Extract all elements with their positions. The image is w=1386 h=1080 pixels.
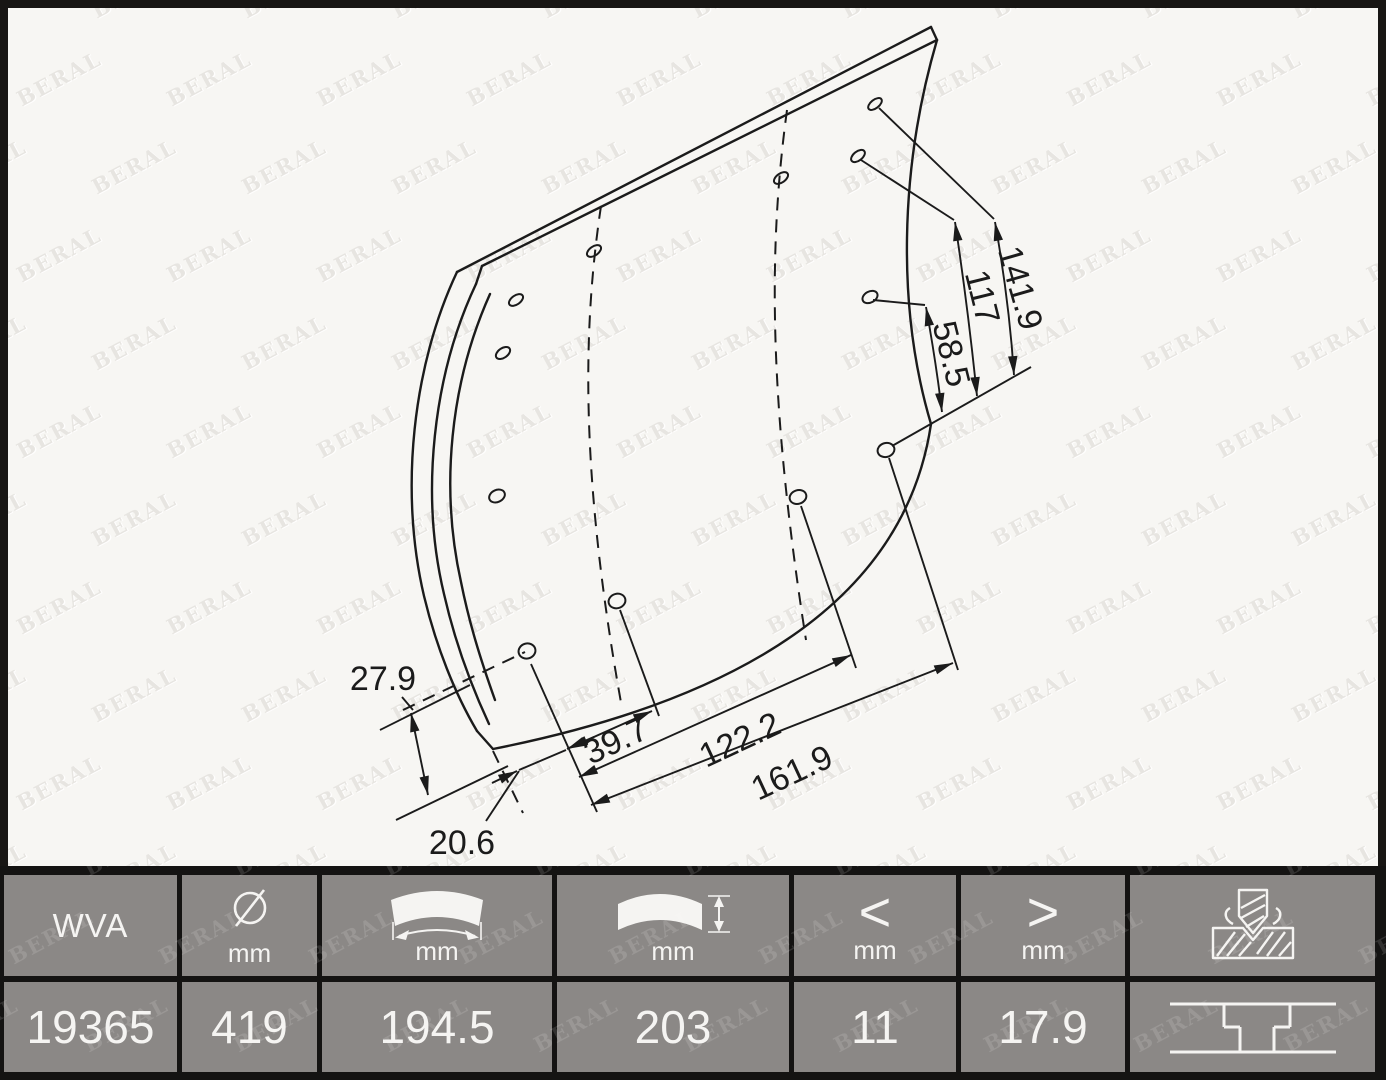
countersink-drill-icon	[1201, 886, 1305, 966]
brand-watermark: BERAL	[838, 8, 931, 23]
drawing-panel: BERALBERALBERALBERALBERALBERALBERALBERAL…	[8, 8, 1378, 866]
less-than-symbol: <	[859, 888, 892, 936]
brand-watermark: BERAL	[688, 310, 781, 375]
brand-watermark: BERAL	[238, 838, 331, 866]
brand-watermark: BERAL	[538, 486, 631, 551]
brand-watermark: BERAL	[8, 662, 31, 727]
brand-watermark: BERAL	[838, 486, 931, 551]
brand-watermark: BERAL	[88, 8, 181, 23]
brand-watermark: BERAL	[1213, 574, 1306, 639]
brand-watermark: BERAL	[988, 486, 1081, 551]
brand-watermark: BERAL	[8, 134, 31, 199]
brand-watermark: BERAL	[8, 310, 31, 375]
length-value: 194.5	[379, 1000, 494, 1054]
brand-watermark: BERAL	[1288, 486, 1378, 551]
brand-watermark: BERAL	[463, 222, 556, 287]
unit-label: mm	[228, 940, 271, 966]
brand-watermark: BERAL	[988, 662, 1081, 727]
brand-watermark: BERAL	[388, 838, 481, 866]
brand-watermark: BERAL	[163, 46, 256, 111]
value-cell-rivet	[1130, 982, 1375, 1072]
wva-label: WVA	[53, 907, 129, 945]
brand-watermark: BERAL	[1063, 574, 1156, 639]
brand-watermark: BERAL	[238, 486, 331, 551]
header-cell-diameter: mm	[182, 875, 317, 976]
brand-watermark: BERAL	[688, 838, 781, 866]
brand-watermark: BERAL	[13, 574, 106, 639]
brand-watermark: BERAL	[313, 574, 406, 639]
brand-watermark: BERAL	[688, 134, 781, 199]
brand-watermark: BERAL	[88, 486, 181, 551]
brand-watermark: BERAL	[1288, 134, 1378, 199]
brand-watermark: BERAL	[163, 750, 256, 815]
brand-watermark: BERAL	[1138, 662, 1231, 727]
brand-watermark: BERAL	[613, 222, 706, 287]
diameter-icon	[225, 886, 275, 938]
header-cell-min-thickness: < mm	[794, 875, 956, 976]
spec-table: WVA mm mm	[0, 866, 1386, 1080]
brand-watermark: BERAL	[163, 574, 256, 639]
brand-watermark: BERAL	[1063, 222, 1156, 287]
brand-watermark: BERAL	[1138, 8, 1231, 23]
brand-watermark: BERAL	[988, 838, 1081, 866]
brand-watermark: BERAL	[388, 310, 481, 375]
brand-watermark: BERAL	[13, 222, 106, 287]
value-cell-min-thickness: 11	[794, 982, 956, 1072]
header-cell-rivet	[1130, 875, 1375, 976]
brand-watermark: BERAL	[613, 398, 706, 463]
spec-grid: WVA mm mm	[4, 875, 1375, 1072]
brand-watermark: BERAL	[1213, 46, 1306, 111]
unit-label: mm	[415, 938, 458, 964]
brand-watermark: BERAL	[238, 134, 331, 199]
brand-watermark: BERAL	[988, 8, 1081, 23]
brand-watermark: BERAL	[463, 398, 556, 463]
brand-watermark: BERAL	[163, 222, 256, 287]
brand-watermark: BERAL	[613, 574, 706, 639]
header-cell-wva: WVA	[4, 875, 177, 976]
brand-watermark: BERAL	[313, 222, 406, 287]
unit-label: mm	[853, 937, 896, 963]
brand-watermark: BERAL	[88, 310, 181, 375]
brand-watermark: BERAL	[1138, 838, 1231, 866]
brand-watermark: BERAL	[238, 662, 331, 727]
brand-watermark: BERAL	[163, 398, 256, 463]
brand-watermark: BERAL	[238, 8, 331, 23]
brand-watermark: BERAL	[8, 8, 31, 23]
brand-watermark: BERAL	[313, 398, 406, 463]
brand-watermark: BERAL	[613, 46, 706, 111]
brand-watermark: BERAL	[538, 8, 631, 23]
max-thickness-value: 17.9	[998, 1000, 1088, 1054]
brand-watermark: BERAL	[1213, 398, 1306, 463]
brand-watermark: BERAL	[8, 838, 31, 866]
brand-watermark: BERAL	[1138, 310, 1231, 375]
brand-watermark: BERAL	[1363, 574, 1378, 639]
brand-watermark: BERAL	[88, 838, 181, 866]
wva-value: 19365	[27, 1000, 155, 1054]
brand-watermark: BERAL	[463, 46, 556, 111]
header-cell-width: mm	[557, 875, 789, 976]
brand-watermark: BERAL	[238, 310, 331, 375]
brand-watermark: BERAL	[913, 750, 1006, 815]
value-cell-length: 194.5	[322, 982, 552, 1072]
width-value: 203	[635, 1000, 712, 1054]
unit-label: mm	[651, 938, 694, 964]
brand-watermark: BERAL	[763, 398, 856, 463]
unit-label: mm	[1021, 937, 1064, 963]
brand-watermark: BERAL	[13, 46, 106, 111]
brand-watermark: BERAL	[838, 134, 931, 199]
brand-watermark: BERAL	[1363, 222, 1378, 287]
brand-watermark: BERAL	[763, 46, 856, 111]
value-cell-wva: 19365	[4, 982, 177, 1072]
brand-watermark: BERAL	[1288, 8, 1378, 23]
brand-watermark: BERAL	[763, 574, 856, 639]
brand-watermark: BERAL	[988, 134, 1081, 199]
brand-watermark: BERAL	[1213, 222, 1306, 287]
brand-watermark: BERAL	[1063, 750, 1156, 815]
brand-watermark: BERAL	[613, 750, 706, 815]
brand-watermark: BERAL	[913, 222, 1006, 287]
brand-watermark: BERAL	[388, 134, 481, 199]
header-cell-length: mm	[322, 875, 552, 976]
brand-watermark: BERAL	[913, 398, 1006, 463]
brand-watermark: BERAL	[388, 8, 481, 23]
brand-watermark: BERAL	[88, 134, 181, 199]
brand-watermark: BERAL	[388, 662, 481, 727]
brand-watermark: BERAL	[13, 398, 106, 463]
brand-watermark: BERAL	[1288, 662, 1378, 727]
brand-watermark: BERAL	[538, 838, 631, 866]
brand-watermark: BERAL	[1363, 398, 1378, 463]
header-cell-max-thickness: > mm	[961, 875, 1125, 976]
brand-watermark: BERAL	[8, 486, 31, 551]
brand-watermark: BERAL	[763, 750, 856, 815]
brand-watermark: BERAL	[688, 662, 781, 727]
brand-watermark: BERAL	[13, 750, 106, 815]
brand-watermark: BERAL	[388, 486, 481, 551]
value-cell-width: 203	[557, 982, 789, 1072]
catalog-image: { "brand_watermark": { "text": "BERAL" }…	[0, 0, 1386, 1080]
brand-watermark: BERAL	[763, 222, 856, 287]
brand-watermark: BERAL	[688, 8, 781, 23]
brand-watermark: BERAL	[1288, 838, 1378, 866]
brand-watermark: BERAL	[913, 574, 1006, 639]
brand-watermark: BERAL	[688, 486, 781, 551]
min-thickness-value: 11	[851, 1000, 899, 1054]
brand-watermark: BERAL	[1063, 398, 1156, 463]
brand-watermark: BERAL	[1213, 750, 1306, 815]
brand-watermark: BERAL	[1363, 750, 1378, 815]
value-cell-diameter: 419	[182, 982, 317, 1072]
brand-watermark: BERAL	[463, 750, 556, 815]
brand-watermark: BERAL	[838, 310, 931, 375]
brand-watermark: BERAL	[838, 838, 931, 866]
diameter-value: 419	[211, 1000, 288, 1054]
brand-watermark: BERAL	[88, 662, 181, 727]
rivet-hole-profile-icon	[1158, 994, 1348, 1060]
brand-watermark: BERAL	[313, 46, 406, 111]
watermark-layer-drawing: BERALBERALBERALBERALBERALBERALBERALBERAL…	[8, 8, 1378, 866]
brand-watermark: BERAL	[538, 310, 631, 375]
brand-watermark: BERAL	[913, 46, 1006, 111]
value-cell-max-thickness: 17.9	[961, 982, 1125, 1072]
brand-watermark: BERAL	[1138, 486, 1231, 551]
brand-watermark: BERAL	[1138, 134, 1231, 199]
brand-watermark: BERAL	[313, 750, 406, 815]
brand-watermark: BERAL	[1363, 46, 1378, 111]
brand-watermark: BERAL	[838, 662, 931, 727]
brand-watermark: BERAL	[988, 310, 1081, 375]
brand-watermark: BERAL	[1063, 46, 1156, 111]
brand-watermark: BERAL	[538, 134, 631, 199]
brand-watermark: BERAL	[463, 574, 556, 639]
greater-than-symbol: >	[1027, 888, 1060, 936]
brand-watermark: BERAL	[538, 662, 631, 727]
brand-watermark: BERAL	[1288, 310, 1378, 375]
